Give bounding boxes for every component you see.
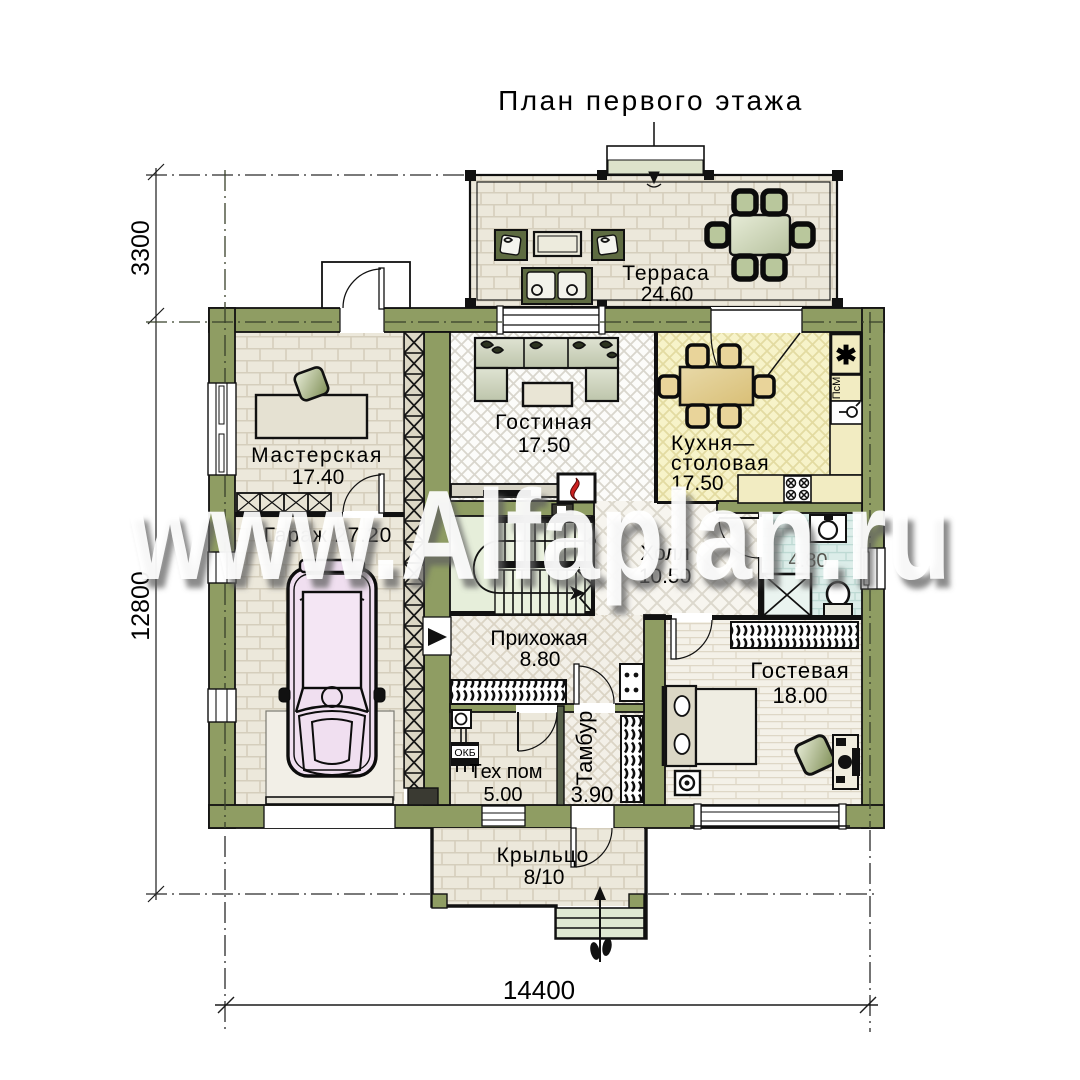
svg-text:Прихожая: Прихожая bbox=[490, 627, 587, 650]
svg-text:8/10: 8/10 bbox=[524, 866, 565, 889]
svg-text:Крыльцо: Крыльцо bbox=[497, 844, 590, 867]
svg-text:ПсМ: ПсМ bbox=[831, 377, 843, 400]
svg-text:18.00: 18.00 bbox=[772, 683, 827, 708]
svg-text:Терраса: Терраса bbox=[622, 262, 710, 285]
svg-text:17.50: 17.50 bbox=[518, 434, 571, 457]
svg-text:8.80: 8.80 bbox=[520, 648, 561, 671]
svg-text:✱: ✱ bbox=[835, 340, 857, 370]
svg-text:ОКБ: ОКБ bbox=[454, 747, 475, 759]
svg-text:5.00: 5.00 bbox=[484, 784, 523, 806]
svg-text:www.Alfaplan.ru: www.Alfaplan.ru bbox=[128, 464, 951, 606]
svg-text:Гостевая: Гостевая bbox=[750, 658, 849, 683]
svg-text:Тамбур: Тамбур bbox=[572, 711, 597, 786]
svg-text:Тех пом: Тех пом bbox=[469, 761, 542, 783]
svg-text:24.60: 24.60 bbox=[641, 283, 694, 306]
svg-text:Гостиная: Гостиная bbox=[495, 411, 593, 434]
svg-text:3.90: 3.90 bbox=[571, 782, 614, 807]
svg-text:3300: 3300 bbox=[127, 220, 155, 276]
svg-text:14400: 14400 bbox=[503, 975, 575, 1005]
svg-text:План первого этажа: План первого этажа bbox=[498, 85, 804, 116]
